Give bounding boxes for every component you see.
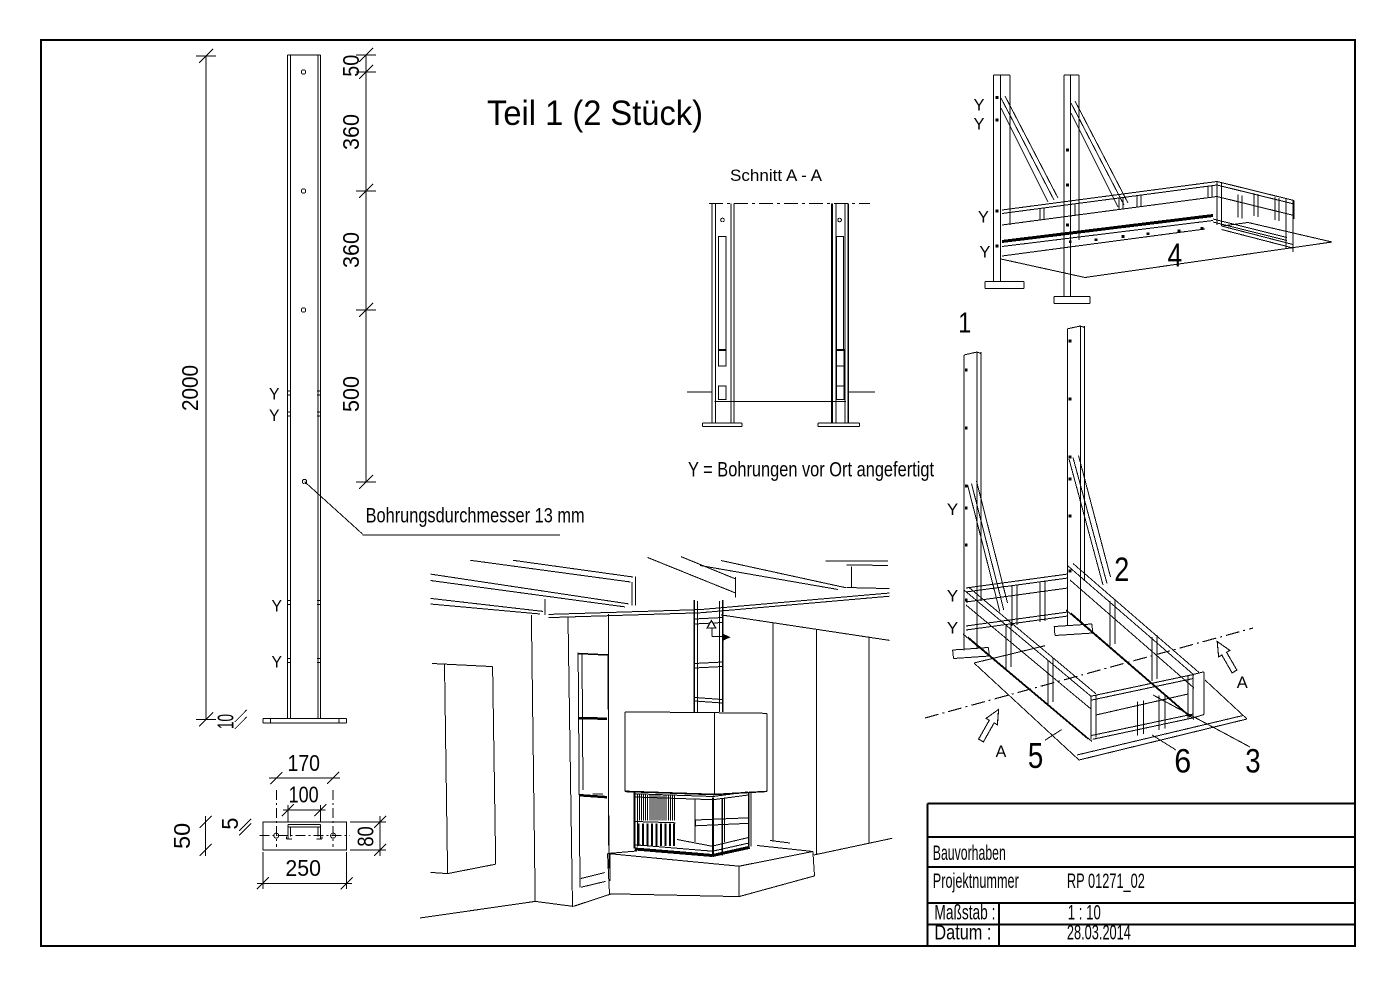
svg-text:Y: Y — [269, 386, 280, 404]
svg-text:Y: Y — [978, 207, 989, 226]
svg-text:2: 2 — [1114, 551, 1129, 589]
svg-text:Teil 1 (2 Stück): Teil 1 (2 Stück) — [487, 94, 703, 133]
svg-text:1: 1 — [958, 308, 971, 340]
svg-text:80: 80 — [353, 826, 379, 847]
svg-text:Y: Y — [272, 654, 283, 672]
svg-text:50: 50 — [338, 55, 364, 77]
svg-text:Y: Y — [979, 243, 990, 262]
svg-text:Bauvorhaben: Bauvorhaben — [933, 842, 1006, 865]
svg-text:6: 6 — [1174, 743, 1191, 781]
svg-text:250: 250 — [285, 855, 321, 881]
svg-text:Y: Y — [947, 619, 958, 638]
svg-text:100: 100 — [289, 782, 319, 808]
svg-text:RP 01271_02: RP 01271_02 — [1067, 870, 1145, 893]
svg-text:5: 5 — [217, 818, 243, 830]
svg-text:Y = Bohrungen vor Ort angefert: Y = Bohrungen vor Ort angefertigt — [688, 459, 934, 482]
svg-text:Bohrungsdurchmesser 13 mm: Bohrungsdurchmesser 13 mm — [366, 505, 585, 528]
svg-text:Y: Y — [974, 115, 985, 134]
svg-text:3: 3 — [1245, 743, 1260, 781]
svg-text:2000: 2000 — [177, 365, 203, 411]
svg-text:Schnitt A - A: Schnitt A - A — [730, 166, 823, 185]
svg-text:5: 5 — [1028, 735, 1043, 776]
svg-text:Y: Y — [947, 500, 958, 519]
svg-text:A: A — [996, 742, 1007, 761]
svg-text:Y: Y — [947, 587, 958, 606]
svg-text:Y: Y — [269, 407, 280, 425]
svg-text:Projektnummer: Projektnummer — [933, 870, 1019, 893]
svg-text:A: A — [1237, 673, 1249, 692]
svg-text:500: 500 — [338, 376, 364, 412]
svg-text:360: 360 — [338, 114, 364, 150]
svg-text:Y: Y — [974, 96, 985, 115]
svg-text:Y: Y — [272, 598, 283, 616]
svg-text:360: 360 — [338, 232, 364, 268]
svg-text:170: 170 — [288, 750, 321, 776]
svg-text:Datum :: Datum : — [934, 922, 991, 945]
svg-text:28.03.2014: 28.03.2014 — [1067, 922, 1131, 945]
svg-text:50: 50 — [169, 823, 195, 849]
svg-text:4: 4 — [1168, 236, 1183, 273]
svg-text:10: 10 — [213, 714, 239, 729]
